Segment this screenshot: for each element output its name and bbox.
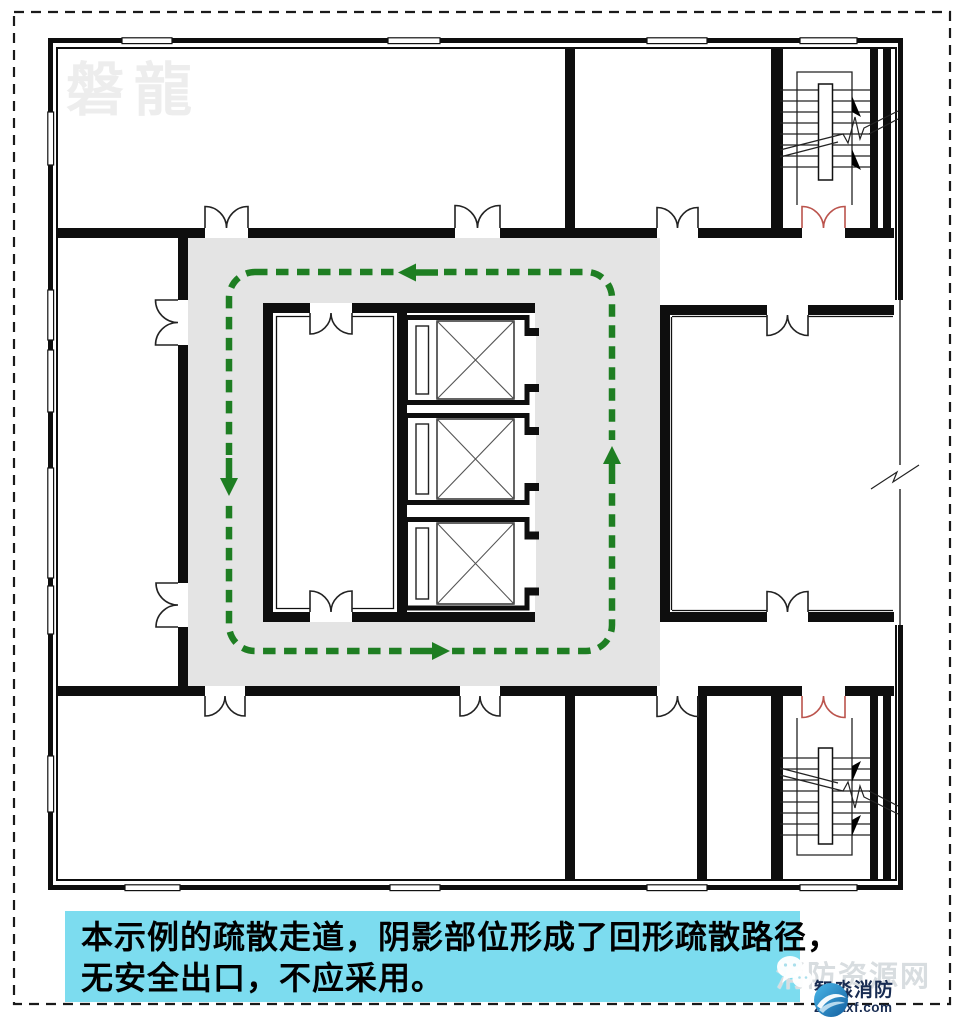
swoosh-logo-icon xyxy=(812,981,850,1019)
floor-plan-svg: 磐龍 xyxy=(0,0,965,1020)
door-swing xyxy=(460,696,500,716)
window xyxy=(48,468,54,578)
window xyxy=(125,885,180,891)
door-swing xyxy=(156,583,178,627)
window xyxy=(48,290,54,340)
watermark-text: 磐龍 xyxy=(66,58,202,123)
caption-bar: 本示例的疏散走道，阴影部位形成了回形疏散路径， 无安全出口，不应采用。 xyxy=(65,911,800,1002)
window xyxy=(390,885,440,891)
elevator-door-panel xyxy=(416,326,429,394)
stair-direction-arrow-icon xyxy=(852,96,861,117)
stair-stringer xyxy=(819,84,833,180)
brand-block: 智淼消防 zmjaxf.com xyxy=(812,981,894,1015)
elevator-bank xyxy=(406,318,540,609)
caption-line-2: 无安全出口，不应采用。 xyxy=(81,958,800,999)
window xyxy=(48,586,54,634)
door-swing xyxy=(657,208,698,229)
elevator-shaft xyxy=(406,416,540,503)
window xyxy=(48,756,54,812)
stair-top-right xyxy=(780,72,898,205)
stair-direction-arrow-icon xyxy=(852,815,861,836)
window xyxy=(647,38,707,44)
window xyxy=(800,38,857,44)
stair-direction-arrow-icon xyxy=(852,761,861,782)
door-swing xyxy=(205,696,245,716)
wall-break-line xyxy=(871,465,919,489)
door-swing xyxy=(156,300,179,345)
window xyxy=(647,885,707,891)
stair-door-top xyxy=(802,207,845,229)
window xyxy=(48,112,54,165)
stair-stringer xyxy=(819,748,833,844)
figure-canvas: 磐龍 xyxy=(0,0,965,1020)
door-swing xyxy=(767,592,808,613)
wechat-icon xyxy=(776,953,814,995)
window xyxy=(388,38,440,44)
elevator-shaft xyxy=(406,318,540,403)
caption-line-1: 本示例的疏散走道，阴影部位形成了回形疏散路径， xyxy=(81,917,800,958)
window xyxy=(48,350,54,412)
door-swing xyxy=(767,315,808,336)
window xyxy=(800,885,857,891)
stair-bottom-right xyxy=(780,718,898,855)
window xyxy=(122,38,172,44)
door-swing xyxy=(455,206,500,229)
door-swing xyxy=(205,207,248,229)
stair-door-bottom xyxy=(802,696,845,718)
elevator-door-panel xyxy=(416,424,429,494)
elevator-shaft xyxy=(406,520,540,609)
elevator-door-panel xyxy=(416,528,429,599)
door-swing xyxy=(657,696,698,717)
